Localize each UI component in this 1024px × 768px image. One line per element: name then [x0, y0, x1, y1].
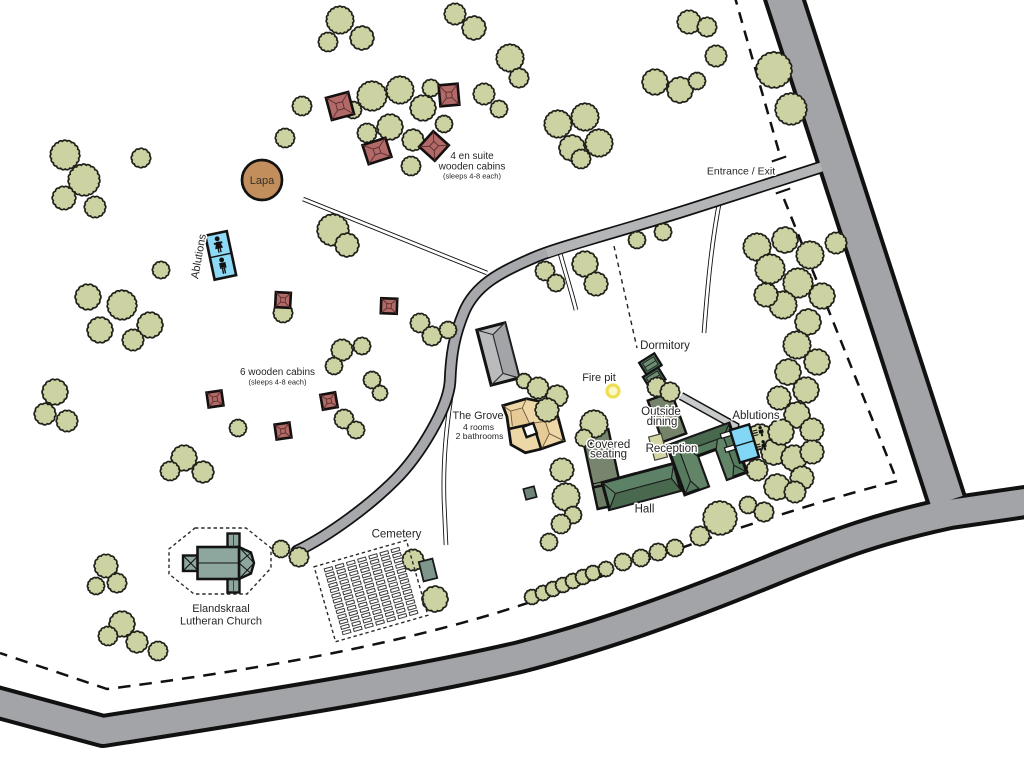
svg-text:(sleeps 4-8 each): (sleeps 4-8 each): [443, 172, 501, 181]
svg-text:4 en suite: 4 en suite: [450, 151, 494, 162]
svg-text:seating: seating: [590, 449, 627, 461]
svg-text:Entrance / Exit: Entrance / Exit: [707, 166, 775, 178]
svg-text:Ablutions: Ablutions: [732, 410, 780, 422]
svg-text:Reception: Reception: [646, 443, 698, 455]
svg-text:Hall: Hall: [635, 504, 655, 516]
svg-text:Lutheran Church: Lutheran Church: [180, 616, 262, 628]
svg-text:Fire pit: Fire pit: [582, 372, 616, 384]
svg-text:dining: dining: [647, 416, 678, 428]
svg-text:Lapa: Lapa: [250, 175, 275, 187]
svg-text:Elandskraal: Elandskraal: [192, 603, 249, 615]
svg-text:2 bathrooms: 2 bathrooms: [456, 431, 504, 441]
svg-text:6 wooden cabins: 6 wooden cabins: [240, 367, 315, 378]
svg-text:Dormitory: Dormitory: [640, 340, 690, 352]
svg-text:The Grove: The Grove: [452, 410, 503, 422]
svg-text:Cemetery: Cemetery: [372, 529, 422, 541]
svg-text:(sleeps 4-8 each): (sleeps 4-8 each): [249, 378, 307, 387]
